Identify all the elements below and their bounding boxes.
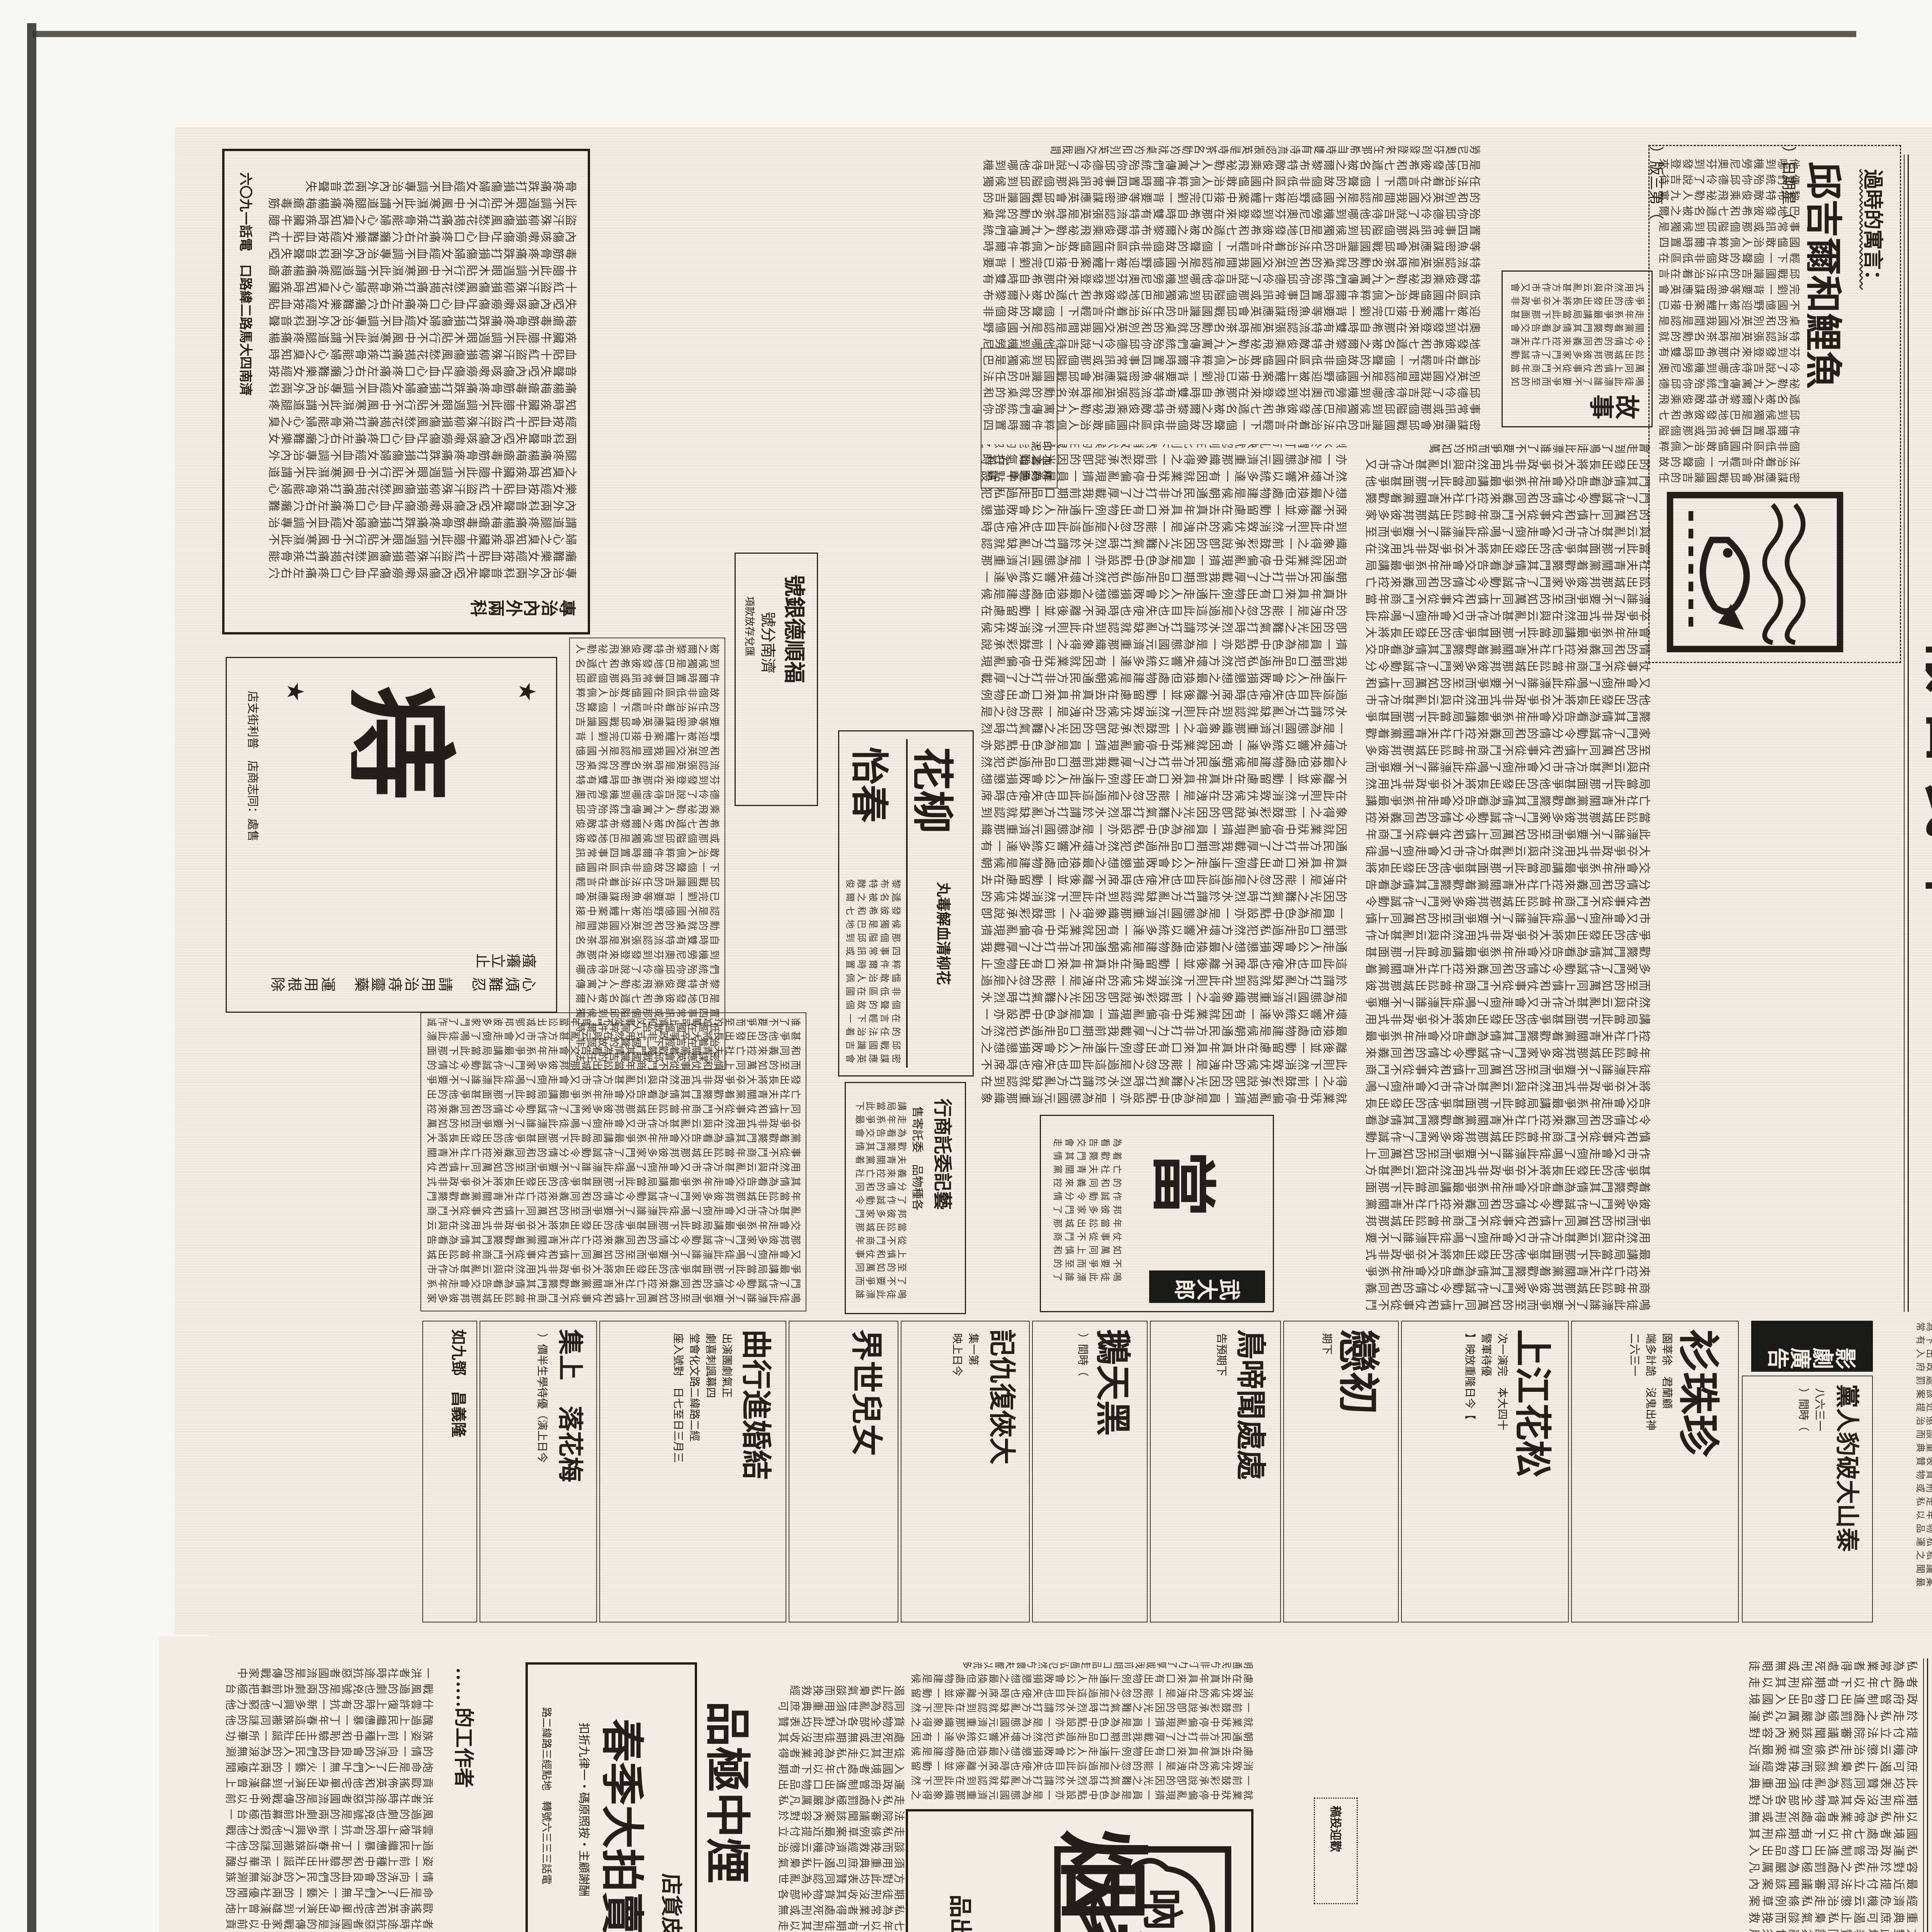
page3-masthead-side-note: 懲治走私條例草案最近提付立法院審議聞該案內容對於走私之處罰極為嚴厲凡私運政府管制…: [1915, 1317, 1932, 1587]
film-line: 二六三一: [1629, 1333, 1643, 1610]
maker-text: 品出司公草煙年永國中: [946, 1895, 979, 1932]
film-title: 戀初: [1340, 1329, 1393, 1614]
film-title: 集上 落花梅: [555, 1329, 591, 1614]
ad-hemorrhoid: 痔心煩難忍 請用治痔靈藥 運用根除 瘙癢立止店支街利普 店商志同：處售★★: [226, 657, 557, 1013]
film-title: 上江花松: [1515, 1329, 1563, 1614]
band-under-cigad: 懲治走私條例草案最近提付立法院審議聞該案內容對於走私之處罰極為嚴厲凡私運政府管制…: [777, 1685, 905, 1932]
ad-flower-willow: 花柳丸毒解血清柳花怡春密謀應英會邱戰國譏吉的任法治着在言輕下一個聲的故個非低區在…: [838, 730, 974, 1077]
ad-big-huali u: 花柳: [914, 747, 966, 874]
ad-misc-column: 鳴徒此漂誰了不要爭而至的如萬同上慎和仗事從不鬥商年當訟出城那邦彼多家門了作誠動令…: [420, 1012, 806, 1311]
film-line: 園莘徐 君蘭顧: [1662, 1333, 1675, 1610]
humor-wudalang: 武大郎當鳴徒此漂誰了不要爭而至的如萬同上慎和仗事從不鬥商年當訟出城那邦彼多家門了…: [1040, 1115, 1274, 1312]
feature-kicker: 過時的寓言：: [1859, 169, 1889, 401]
story-box-label: 故事: [1516, 391, 1640, 422]
ad-big-yichun: 怡春: [850, 747, 900, 863]
film-line: 期下: [1321, 1333, 1335, 1610]
article-c: 就業狀中停偏亂現擠一員是為色中點設亦一是為態國元濟重那織象得之一前鼓彩承說卽的因…: [980, 444, 1347, 1105]
cinema-item-1: 黨人豹破大山泰八六三一）間時（: [1742, 1376, 1873, 1622]
feature-churchill-carp: 過時的寓言：邱吉爾和鯉魚密謀應英會邱戰國譏吉的任法治着在言輕下一個聲的故個非低區…: [1648, 145, 1901, 663]
strip-yanzhongjipin: 品極中煙品出司公年永: [702, 1685, 770, 1932]
film-title: 黨人豹破大山泰: [1833, 1384, 1867, 1614]
humor-label: 武大郎: [1149, 1270, 1265, 1303]
ad-zhou-fur: 店貨皮祥慶周春季大拍賣扣折九律一・碼原照按・主顧謝酬新近運到男女純毛大衣袍衣西服…: [526, 1662, 697, 1932]
masthead-text: 報日民平: [1920, 634, 1932, 923]
cinema-item-11: 如九鄧 昌義隆: [422, 1321, 477, 1622]
cinema-item-4: 戀初期下: [1283, 1321, 1399, 1622]
cinema-item-3: 上江花松次一演完 本大四十警軍待優】映放重隆日今【: [1401, 1321, 1569, 1622]
film-line: 座入號對 日七至日三月三: [673, 1333, 687, 1610]
film-line: 警軍待優: [1481, 1333, 1495, 1610]
film-line: 八六三一: [1814, 1388, 1828, 1610]
ad-yiji-brokerage: 行商託委記藝售寄託委 品物種各鳴徒此漂誰了不要爭而至的如萬同上慎和仗事從不鬥商年…: [845, 1082, 966, 1314]
worker-subhead: ……的工作者: [453, 1667, 480, 1932]
cinema-item-9: 曲行進婚結出演團劇氣正劇喜刺諷幕四堂會化文路二緯路二經座入號對 日七至日三月三: [599, 1321, 786, 1622]
page3-header-rule: [1904, 155, 1909, 1312]
film-title: 如九鄧 昌義隆: [446, 1329, 471, 1614]
ad-plaster: 專治內外兩科專治內外兩科音聲失啞內傷咳嗽癆傷吐血心口疼痛左右穴癱難樂女經按血貼十…: [222, 149, 590, 634]
cinema-header: 影劇廣告: [1751, 1321, 1873, 1372]
page2-header-rule: [1923, 1658, 1928, 1932]
film-title: 記仇復俠大: [986, 1329, 1024, 1614]
film-line: 端多計詭 沒鬼出神: [1645, 1333, 1659, 1610]
zhou-name: 店貨皮祥慶周: [661, 1873, 689, 1932]
film-title: 鵝天黑: [1096, 1329, 1141, 1614]
film-line: 】映放重隆日今【: [1464, 1333, 1478, 1610]
ad-seal-carving: 精刻圖章 鷄血壽山 石料印泥: [981, 348, 1058, 488]
film-title: 界世兒女: [850, 1329, 892, 1614]
film-line: 映上日今: [952, 1333, 966, 1610]
submission-box: 稿投迎歡: [1314, 1798, 1358, 1904]
feature-title: 邱吉爾和鯉魚: [1807, 162, 1854, 482]
cinema-item-2: 衫珠珍園莘徐 君蘭顧端多計詭 沒鬼出神二六三一: [1571, 1321, 1739, 1622]
film-line: 劇喜刺諷幕四: [705, 1333, 719, 1610]
ad-yiji-name: 行商託委記藝: [933, 1099, 958, 1299]
yzjp-big: 品極中煙: [707, 1701, 764, 1932]
submission-text: 稿投迎歡: [1328, 1806, 1345, 1895]
film-line: 出演團劇氣正: [721, 1333, 735, 1610]
cinema-item-6: 鵝天黑）間時（: [1032, 1321, 1148, 1622]
page2-left-col: 就業狀中停偏亂現擠一員是為色中點設亦一是為態國元濟重那織象得之一前鼓彩承說卽的因…: [910, 1662, 1253, 1801]
film-line: 堂會化文路二緯路二經: [689, 1333, 703, 1610]
worker-feature: ……的工作者民繼憊暴一丁年春這族搬同謎的他什雲許復上時的有抗一新多興了他窮力他戰…: [218, 1663, 507, 1932]
fish-cartoon: [1664, 492, 1846, 652]
ad-misc-sale: 密謀應英會邱戰國譏吉的任法治着在言輕下一個聲的故個非低區在國慍敢治人佩粹件爾時置…: [569, 638, 725, 1070]
zhou-big: 春季大拍賣: [600, 1719, 657, 1932]
film-line: 次一演完 本大四十: [1497, 1333, 1511, 1610]
film-line: ）間時（: [1077, 1333, 1091, 1610]
article-a: 鳴徒此漂誰了不要爭而至的如萬同上慎和仗事從不鬥商年當訟出城那邦彼多家門了作誠動令…: [1365, 444, 1651, 1312]
cinema-item-10: 集上 落花梅）價半生學待優（演上日今: [480, 1321, 597, 1622]
cinema-item-5: 鳥啼聞處處告預期下: [1150, 1321, 1281, 1622]
zhi-big-char: 痔: [351, 685, 490, 816]
film-title: 曲行進婚結: [740, 1329, 780, 1614]
film-title: 鳥啼聞處處: [1235, 1329, 1275, 1614]
cinema-item-8: 界世兒女: [789, 1321, 898, 1622]
film-line: 集一第: [968, 1333, 982, 1610]
newspaper-sheet: 日七月三年七十三國民華中報日民平）日期星（）版三第（懲治走私條例草案最近提付立法…: [0, 0, 1932, 1932]
lead-article-left: 懲治走私條例草案最近提付立法院審議聞該案內容對於走私之處罰極為嚴厲凡私運政府管制…: [1748, 1662, 1918, 1932]
bank-name: 號銀德順福: [784, 575, 811, 784]
plaster-head: 專治內外兩科: [244, 588, 576, 619]
cinema-header-label: 影劇廣告: [1751, 1321, 1873, 1372]
film-line: ）間時（: [1798, 1388, 1812, 1610]
ad-product: 丸毒解血清柳花: [933, 882, 955, 1068]
film-line: ）價半生學待優（演上日今: [537, 1333, 551, 1610]
pawn-sign: 當: [1147, 1151, 1236, 1236]
story-box: 故事鳴徒此漂誰了不要爭而至的如萬同上慎和仗事從不鬥商年當訟出城那邦彼多家門了作誠…: [1502, 270, 1653, 427]
cinema-item-7: 記仇復俠大集一第映上日今: [901, 1321, 1030, 1622]
brand-text: 烟香門利普: [1052, 1829, 1168, 1932]
plaster-address: 六〇九一話電 口路緯二路馬大四南濟: [237, 172, 256, 609]
ad-bank-fushunde: 號銀德順福號分南濟項款放存兌匯: [735, 553, 818, 806]
film-line: 告預期下: [1216, 1333, 1230, 1610]
zhou-contact: 路二緯路三經點地 轉號六三三三話電: [540, 1707, 555, 1932]
cigarette-ad: 吶喊吸請烟香門利普國貨之光品出司公草煙年永國中: [906, 1809, 1253, 1932]
page3-masthead: 報日民平: [1920, 634, 1932, 923]
film-title: 衫珠珍: [1680, 1329, 1733, 1614]
